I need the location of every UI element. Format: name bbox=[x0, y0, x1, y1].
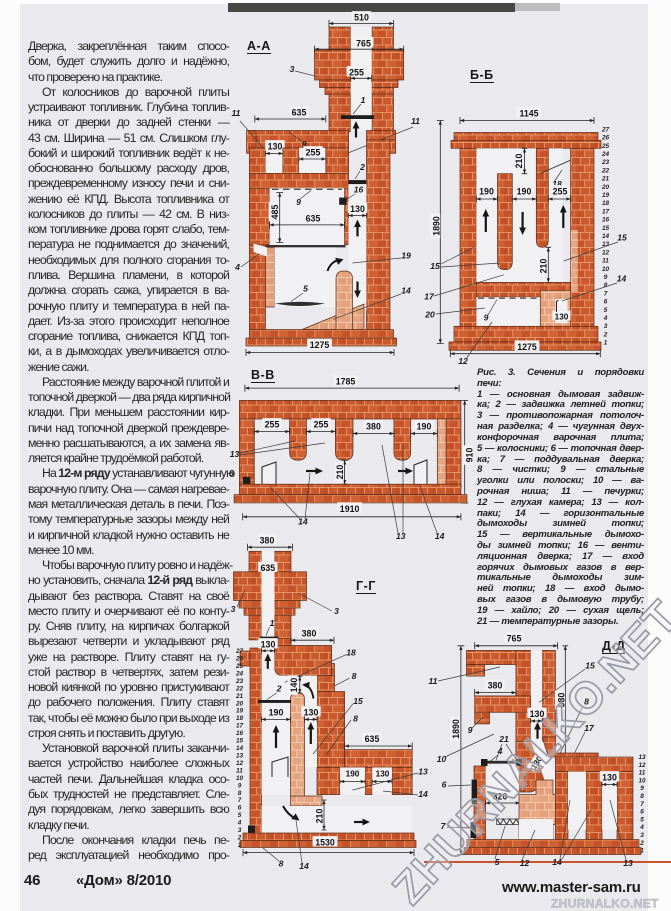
svg-text:22: 22 bbox=[601, 167, 610, 174]
svg-text:130: 130 bbox=[350, 204, 365, 214]
svg-text:25: 25 bbox=[235, 663, 244, 670]
svg-text:11: 11 bbox=[639, 770, 646, 777]
svg-text:6: 6 bbox=[640, 809, 644, 816]
svg-text:1275: 1275 bbox=[310, 340, 330, 350]
svg-text:190: 190 bbox=[517, 186, 532, 196]
svg-text:4: 4 bbox=[603, 315, 608, 322]
svg-text:12: 12 bbox=[520, 858, 530, 868]
svg-text:635: 635 bbox=[306, 213, 321, 223]
svg-text:765: 765 bbox=[507, 633, 522, 643]
svg-text:12: 12 bbox=[458, 356, 468, 366]
svg-text:3: 3 bbox=[290, 64, 295, 74]
svg-text:1145: 1145 bbox=[519, 108, 538, 118]
svg-text:24: 24 bbox=[601, 151, 610, 158]
svg-text:9: 9 bbox=[238, 782, 242, 789]
svg-text:13: 13 bbox=[418, 767, 428, 777]
svg-text:190: 190 bbox=[417, 421, 432, 431]
svg-text:13: 13 bbox=[623, 858, 633, 868]
svg-text:2: 2 bbox=[237, 835, 242, 842]
svg-text:12: 12 bbox=[236, 760, 244, 767]
svg-text:25: 25 bbox=[601, 143, 610, 150]
svg-text:1530: 1530 bbox=[315, 837, 335, 847]
svg-text:255: 255 bbox=[265, 419, 280, 429]
svg-text:14: 14 bbox=[552, 857, 562, 867]
svg-text:980: 980 bbox=[556, 693, 566, 708]
svg-text:210: 210 bbox=[514, 154, 524, 169]
svg-text:11: 11 bbox=[232, 108, 241, 118]
svg-text:17: 17 bbox=[424, 292, 435, 302]
svg-text:255: 255 bbox=[553, 186, 568, 196]
svg-text:15: 15 bbox=[236, 738, 244, 745]
svg-text:130: 130 bbox=[268, 141, 283, 151]
svg-text:15: 15 bbox=[353, 696, 363, 706]
svg-text:130: 130 bbox=[555, 312, 569, 321]
svg-text:3: 3 bbox=[640, 832, 644, 839]
svg-text:3: 3 bbox=[238, 827, 242, 834]
svg-text:26: 26 bbox=[235, 656, 244, 663]
svg-text:190: 190 bbox=[346, 769, 360, 778]
svg-text:19: 19 bbox=[602, 192, 610, 199]
svg-text:19: 19 bbox=[236, 708, 244, 715]
svg-text:7: 7 bbox=[604, 290, 608, 297]
svg-text:8: 8 bbox=[279, 859, 284, 869]
svg-text:3: 3 bbox=[231, 604, 236, 614]
svg-text:12: 12 bbox=[602, 249, 610, 256]
svg-text:130: 130 bbox=[261, 639, 276, 649]
svg-text:1785: 1785 bbox=[336, 376, 356, 386]
svg-text:14: 14 bbox=[236, 745, 244, 752]
svg-text:23: 23 bbox=[601, 159, 610, 166]
svg-text:7: 7 bbox=[441, 821, 447, 831]
svg-text:20: 20 bbox=[601, 184, 610, 191]
svg-text:130: 130 bbox=[602, 772, 617, 782]
svg-text:13: 13 bbox=[638, 754, 646, 761]
svg-text:17: 17 bbox=[602, 208, 610, 215]
svg-text:1: 1 bbox=[361, 95, 366, 105]
svg-text:15: 15 bbox=[617, 233, 627, 243]
svg-text:13: 13 bbox=[396, 531, 406, 541]
svg-text:130: 130 bbox=[376, 769, 390, 778]
svg-text:8: 8 bbox=[604, 282, 608, 289]
svg-text:380: 380 bbox=[488, 680, 503, 690]
svg-text:18: 18 bbox=[602, 200, 610, 207]
svg-text:14: 14 bbox=[435, 531, 445, 541]
svg-text:11: 11 bbox=[236, 767, 243, 774]
svg-text:15: 15 bbox=[430, 261, 440, 271]
svg-text:8: 8 bbox=[352, 671, 357, 681]
svg-text:255: 255 bbox=[349, 67, 364, 77]
svg-text:15: 15 bbox=[602, 225, 610, 232]
svg-text:1910: 1910 bbox=[340, 504, 360, 514]
svg-text:130: 130 bbox=[530, 709, 545, 719]
svg-text:27: 27 bbox=[235, 648, 244, 655]
svg-text:380: 380 bbox=[302, 628, 317, 638]
svg-text:255: 255 bbox=[306, 147, 321, 157]
svg-text:6: 6 bbox=[442, 780, 447, 790]
svg-text:12: 12 bbox=[638, 762, 646, 769]
svg-text:1890: 1890 bbox=[451, 719, 461, 739]
svg-text:10: 10 bbox=[437, 754, 447, 764]
svg-text:510: 510 bbox=[354, 12, 369, 22]
svg-text:1: 1 bbox=[238, 842, 242, 849]
svg-text:9: 9 bbox=[604, 274, 608, 281]
svg-text:21: 21 bbox=[601, 176, 610, 183]
svg-text:3: 3 bbox=[604, 323, 608, 330]
svg-text:5: 5 bbox=[303, 284, 308, 294]
svg-text:1275: 1275 bbox=[517, 342, 537, 352]
svg-text:16: 16 bbox=[602, 217, 610, 224]
svg-text:9: 9 bbox=[484, 313, 489, 323]
svg-text:27: 27 bbox=[601, 126, 610, 133]
svg-text:635: 635 bbox=[365, 734, 380, 744]
svg-text:15: 15 bbox=[585, 661, 595, 671]
svg-text:22: 22 bbox=[235, 685, 244, 692]
svg-text:10: 10 bbox=[236, 775, 244, 782]
svg-text:255: 255 bbox=[314, 419, 329, 429]
svg-text:24: 24 bbox=[235, 670, 244, 677]
svg-text:5: 5 bbox=[238, 812, 242, 819]
svg-text:485: 485 bbox=[270, 205, 280, 220]
svg-text:18: 18 bbox=[346, 648, 356, 658]
svg-text:5: 5 bbox=[640, 816, 644, 823]
svg-text:11: 11 bbox=[602, 258, 609, 265]
svg-text:13: 13 bbox=[236, 752, 244, 759]
svg-text:5: 5 bbox=[604, 307, 608, 314]
svg-text:1: 1 bbox=[604, 340, 608, 347]
svg-text:1: 1 bbox=[270, 618, 275, 628]
svg-text:4: 4 bbox=[639, 824, 644, 831]
svg-text:635: 635 bbox=[292, 107, 307, 117]
svg-text:9: 9 bbox=[640, 785, 644, 792]
svg-text:910: 910 bbox=[464, 448, 474, 463]
svg-text:8: 8 bbox=[229, 468, 234, 478]
svg-text:14: 14 bbox=[401, 286, 411, 296]
svg-text:17: 17 bbox=[236, 723, 244, 730]
svg-text:14: 14 bbox=[617, 274, 627, 284]
svg-text:380: 380 bbox=[260, 535, 275, 545]
svg-text:380: 380 bbox=[366, 421, 381, 431]
svg-text:210: 210 bbox=[335, 465, 345, 480]
svg-text:190: 190 bbox=[269, 707, 284, 717]
svg-text:21: 21 bbox=[235, 693, 244, 700]
svg-text:23: 23 bbox=[235, 678, 244, 685]
svg-text:1: 1 bbox=[640, 848, 644, 855]
svg-text:8: 8 bbox=[238, 790, 242, 797]
svg-text:14: 14 bbox=[418, 789, 428, 799]
svg-text:4: 4 bbox=[237, 820, 242, 827]
svg-text:2: 2 bbox=[276, 684, 282, 694]
svg-text:765: 765 bbox=[356, 38, 371, 48]
svg-text:19: 19 bbox=[401, 251, 411, 261]
svg-text:14: 14 bbox=[299, 861, 309, 871]
svg-text:210: 210 bbox=[538, 259, 548, 274]
svg-text:17: 17 bbox=[584, 723, 595, 733]
svg-text:4: 4 bbox=[234, 262, 240, 272]
svg-text:320: 320 bbox=[493, 791, 508, 801]
svg-text:10: 10 bbox=[602, 266, 610, 273]
svg-text:16: 16 bbox=[236, 730, 244, 737]
svg-text:20: 20 bbox=[424, 310, 435, 320]
svg-text:13: 13 bbox=[230, 449, 240, 459]
svg-text:8: 8 bbox=[584, 697, 589, 707]
svg-text:10: 10 bbox=[638, 777, 646, 784]
svg-text:190: 190 bbox=[479, 186, 494, 196]
svg-text:140: 140 bbox=[289, 678, 299, 693]
svg-text:8: 8 bbox=[353, 714, 358, 724]
svg-text:2: 2 bbox=[603, 331, 608, 338]
svg-text:7: 7 bbox=[640, 801, 644, 808]
svg-text:21: 21 bbox=[498, 734, 509, 744]
svg-text:14: 14 bbox=[602, 233, 610, 240]
svg-text:635: 635 bbox=[260, 563, 275, 573]
svg-text:20: 20 bbox=[235, 700, 244, 707]
svg-text:18: 18 bbox=[236, 715, 244, 722]
svg-text:130: 130 bbox=[304, 707, 319, 717]
svg-text:4: 4 bbox=[497, 746, 503, 756]
svg-text:9: 9 bbox=[468, 725, 473, 735]
svg-text:2: 2 bbox=[639, 840, 644, 847]
svg-text:210: 210 bbox=[314, 809, 324, 824]
svg-text:11: 11 bbox=[411, 116, 420, 126]
svg-text:26: 26 bbox=[601, 135, 610, 142]
svg-text:2: 2 bbox=[359, 162, 365, 172]
svg-text:1890: 1890 bbox=[431, 216, 441, 236]
svg-text:8: 8 bbox=[640, 793, 644, 800]
svg-text:11: 11 bbox=[429, 676, 438, 686]
svg-text:7: 7 bbox=[238, 797, 242, 804]
svg-text:6: 6 bbox=[238, 805, 242, 812]
svg-text:6: 6 bbox=[604, 299, 608, 306]
svg-text:3: 3 bbox=[334, 606, 339, 616]
svg-text:16: 16 bbox=[354, 185, 364, 195]
